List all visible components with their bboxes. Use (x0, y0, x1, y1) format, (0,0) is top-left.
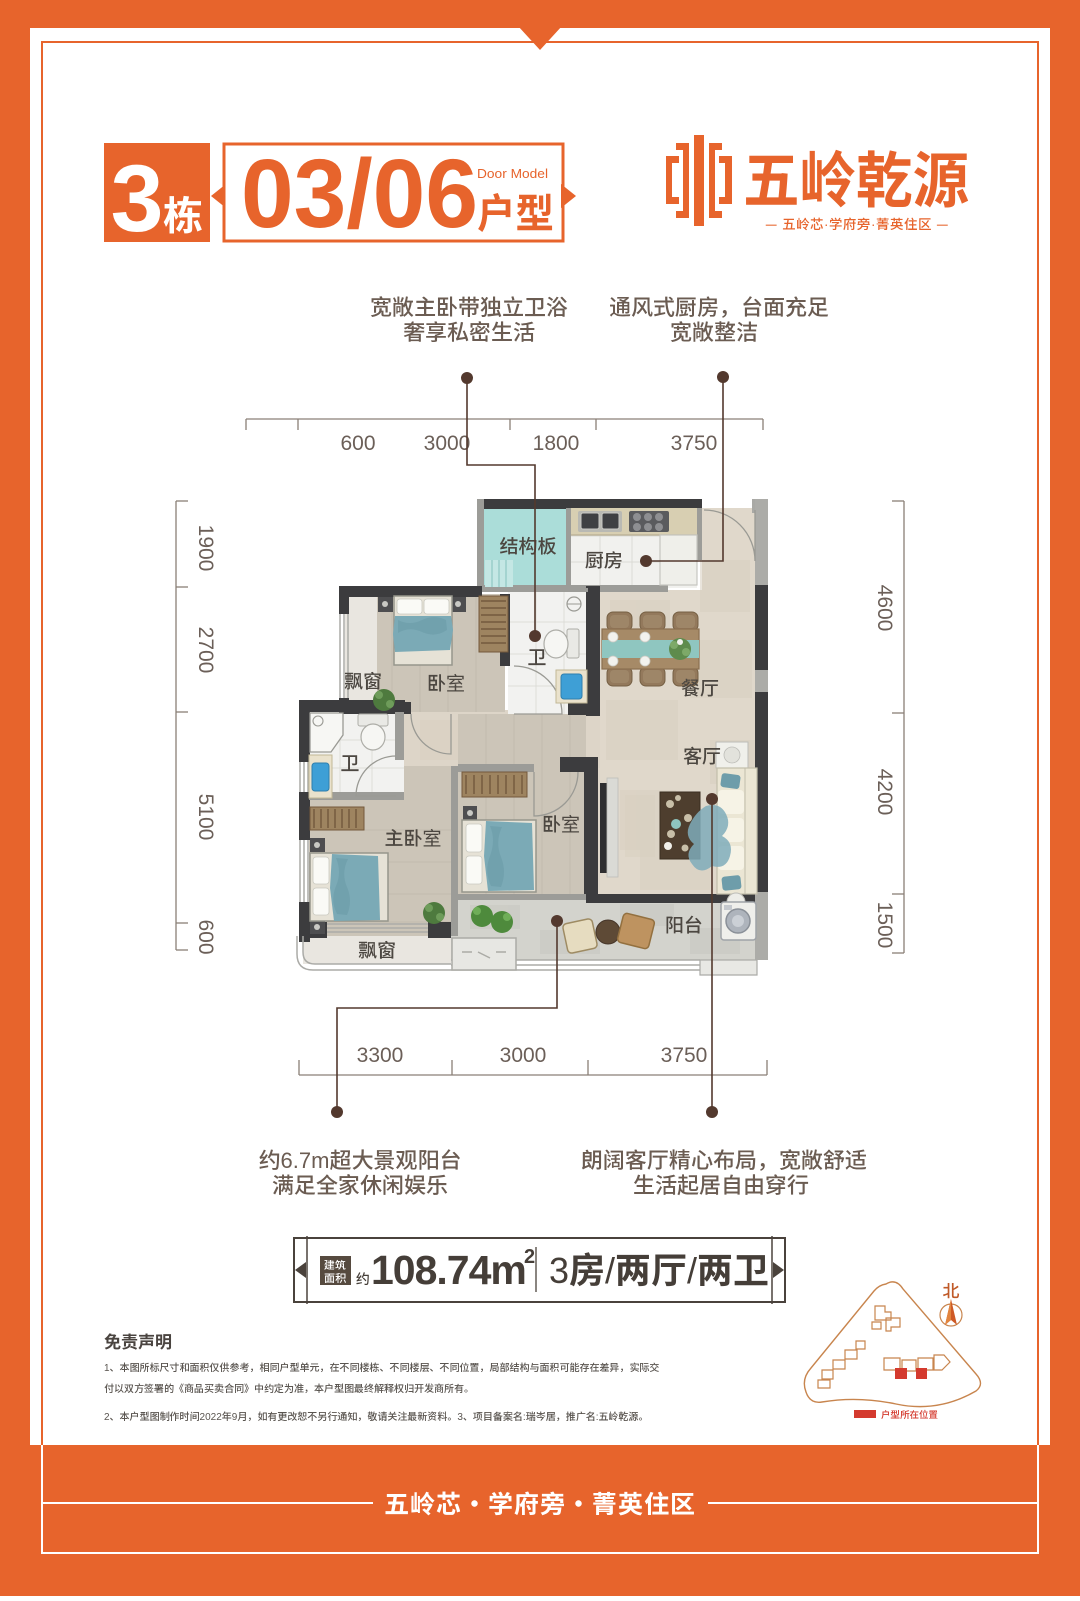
svg-text:3000: 3000 (500, 1039, 547, 1069)
svg-text:约: 约 (356, 1269, 370, 1289)
svg-text:3000: 3000 (424, 427, 471, 457)
svg-text:结构板: 结构板 (499, 532, 556, 559)
svg-text:3750: 3750 (661, 1039, 708, 1069)
svg-text:免责声明: 免责声明 (104, 1328, 172, 1353)
svg-text:3房/两厅/两卫: 3房/两厅/两卫 (549, 1242, 769, 1294)
svg-text:主卧室: 主卧室 (384, 824, 441, 851)
svg-text:Door Model: Door Model (477, 166, 548, 181)
svg-text:生活起居自由穿行: 生活起居自由穿行 (633, 1168, 809, 1200)
svg-text:户型所在位置: 户型所在位置 (881, 1407, 939, 1421)
svg-text:户型: 户型 (477, 180, 554, 240)
svg-text:面积: 面积 (324, 1270, 346, 1286)
svg-text:五岭芯·学府旁·菁英住区: 五岭芯·学府旁·菁英住区 (384, 1485, 696, 1521)
svg-text:栋: 栋 (163, 184, 203, 242)
svg-text:3750: 3750 (671, 427, 718, 457)
svg-text:4600: 4600 (871, 585, 901, 632)
svg-text:奢享私密生活: 奢享私密生活 (403, 315, 535, 347)
svg-text:1、本图所标尺寸和面积仅供参考，相同户型单元，在不同楼栋、不: 1、本图所标尺寸和面积仅供参考，相同户型单元，在不同楼栋、不同楼层、不同位置，局… (104, 1359, 660, 1374)
svg-text:600: 600 (192, 919, 222, 954)
svg-text:卫: 卫 (340, 749, 359, 776)
svg-text:宽敞整洁: 宽敞整洁 (670, 315, 758, 347)
svg-text:2: 2 (524, 1246, 535, 1268)
svg-text:卧室: 卧室 (542, 810, 580, 837)
svg-text:1800: 1800 (533, 427, 580, 457)
svg-text:阳台: 阳台 (665, 911, 703, 938)
svg-text:付以双方签署的《商品买卖合同》中约定为准，本户型图最终解释权: 付以双方签署的《商品买卖合同》中约定为准，本户型图最终解释权归开发商所有。 (104, 1380, 474, 1395)
svg-text:五岭乾源: 五岭乾源 (743, 131, 969, 220)
svg-text:卫: 卫 (527, 643, 546, 670)
svg-text:厨房: 厨房 (585, 546, 623, 573)
svg-text:2、本户型图制作时间2022年9月，如有更改恕不另行通知，敬: 2、本户型图制作时间2022年9月，如有更改恕不另行通知，敬请关注最新资料。3、… (104, 1408, 649, 1423)
svg-text:卧室: 卧室 (427, 669, 465, 696)
svg-text:4200: 4200 (871, 769, 901, 816)
svg-text:飘窗: 飘窗 (344, 667, 382, 694)
svg-text:— 五岭芯·学府旁·菁英住区 —: — 五岭芯·学府旁·菁英住区 — (765, 213, 949, 233)
svg-text:客厅: 客厅 (683, 742, 721, 769)
svg-text:3300: 3300 (357, 1039, 404, 1069)
svg-text:600: 600 (340, 427, 375, 457)
svg-text:北: 北 (943, 1277, 960, 1302)
svg-text:2700: 2700 (192, 627, 222, 674)
svg-text:餐厅: 餐厅 (681, 674, 719, 701)
svg-text:5100: 5100 (192, 794, 222, 841)
svg-text:飘窗: 飘窗 (358, 936, 396, 963)
svg-text:108.74m: 108.74m (371, 1247, 526, 1293)
svg-text:1500: 1500 (871, 902, 901, 949)
svg-text:03/06: 03/06 (241, 139, 478, 248)
svg-text:3: 3 (111, 146, 164, 252)
svg-text:满足全家休闲娱乐: 满足全家休闲娱乐 (272, 1168, 448, 1200)
svg-text:1900: 1900 (192, 525, 222, 572)
